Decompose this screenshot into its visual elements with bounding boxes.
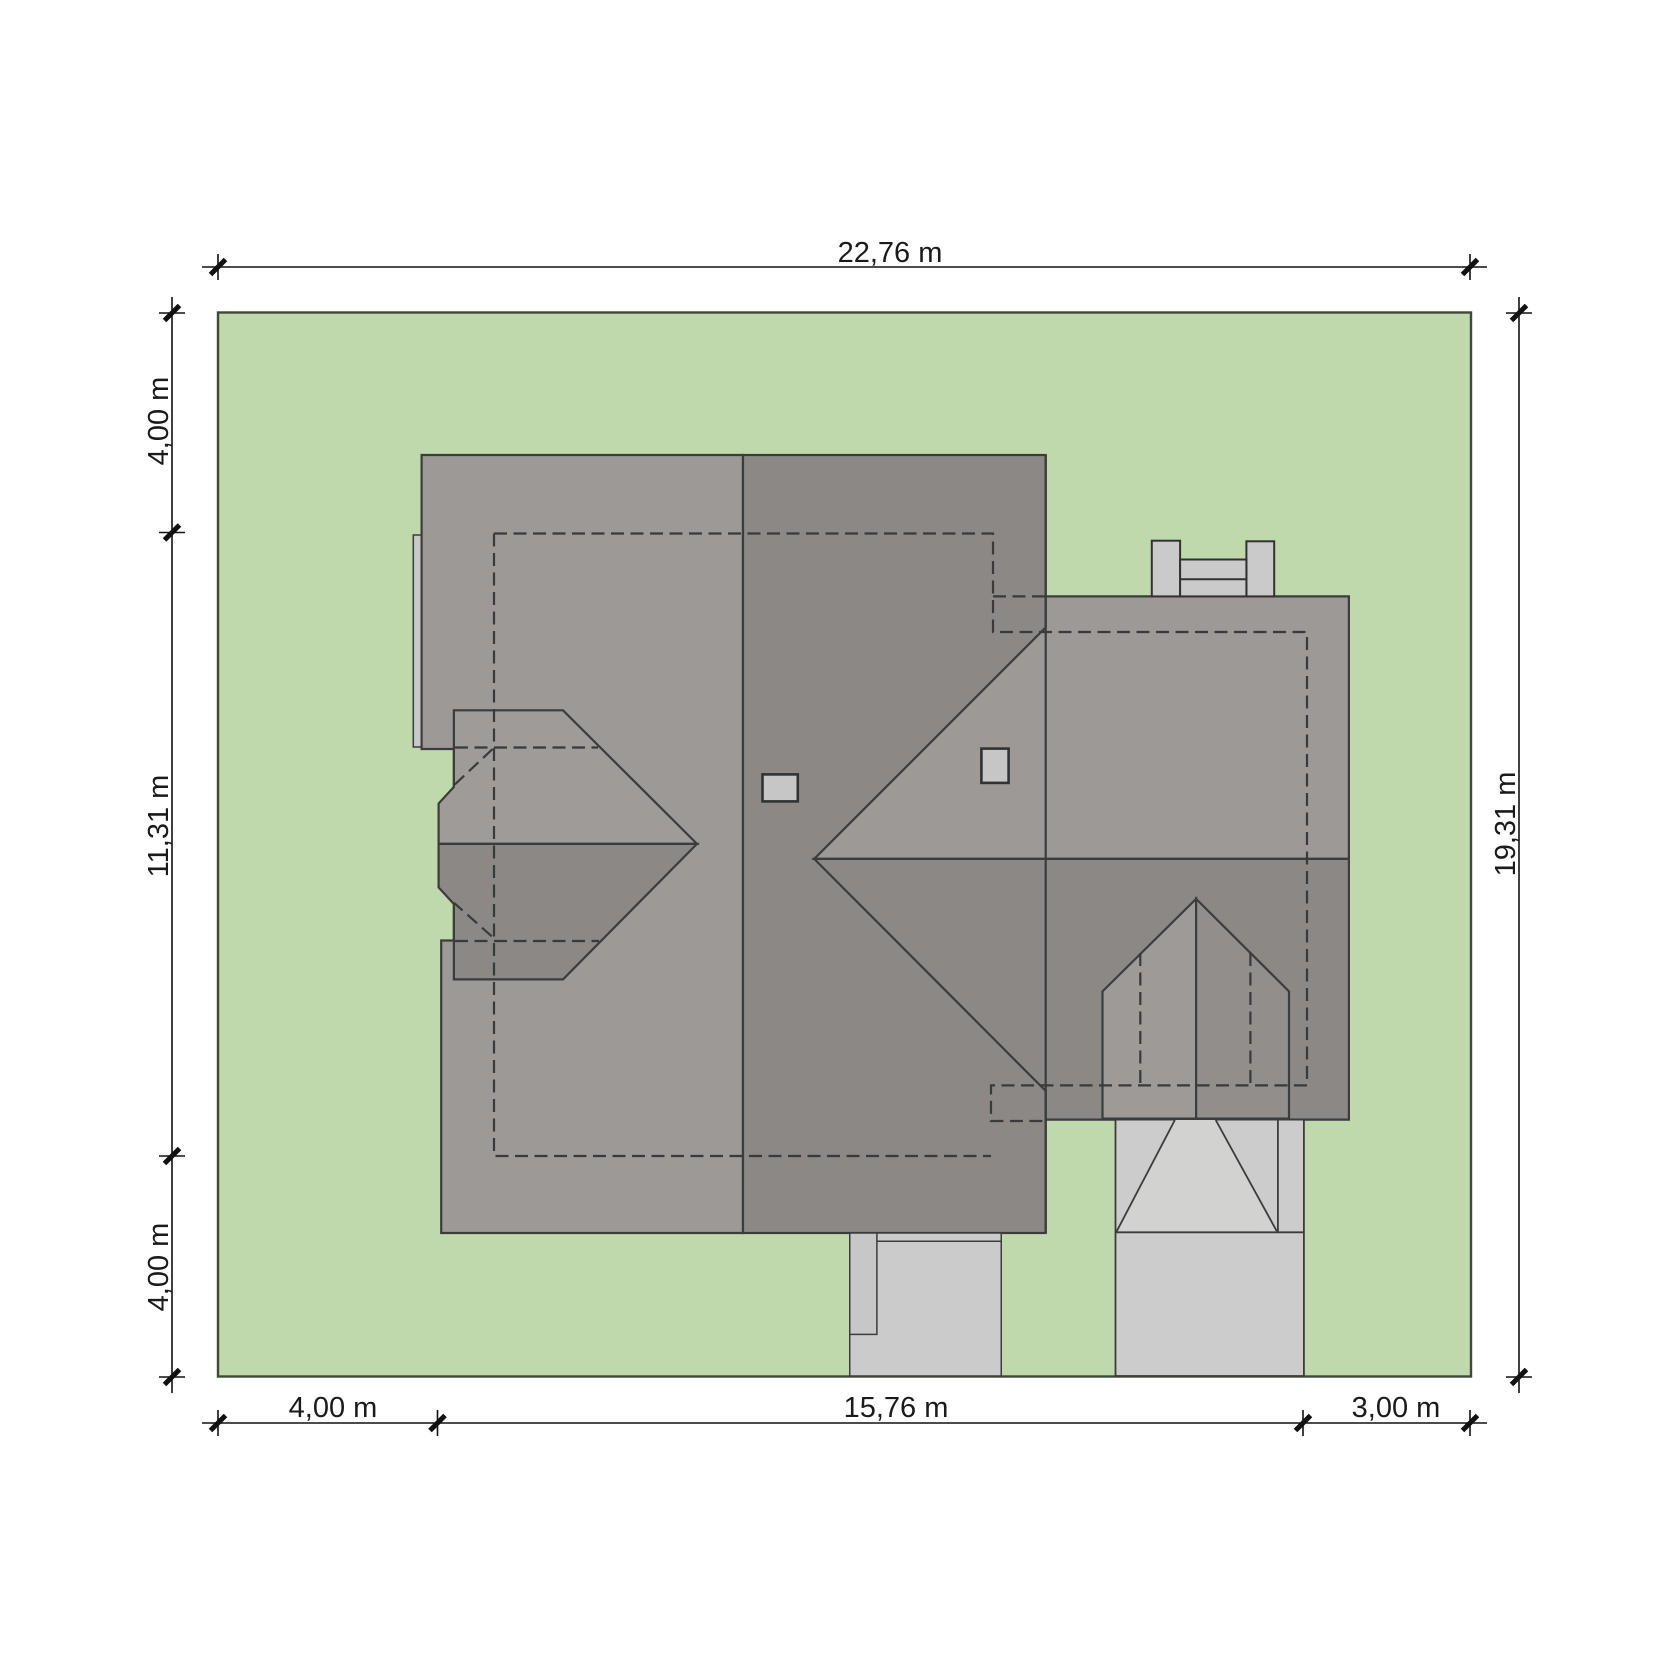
svg-text:15,76 m: 15,76 m	[844, 1392, 949, 1424]
svg-text:4,00 m: 4,00 m	[143, 1223, 175, 1312]
svg-text:22,76 m: 22,76 m	[838, 237, 943, 269]
svg-text:3,00 m: 3,00 m	[1352, 1392, 1441, 1424]
svg-text:19,31 m: 19,31 m	[1490, 772, 1522, 877]
svg-text:4,00 m: 4,00 m	[289, 1392, 378, 1424]
svg-text:11,31 m: 11,31 m	[143, 775, 175, 878]
svg-text:4,00 m: 4,00 m	[143, 377, 175, 466]
